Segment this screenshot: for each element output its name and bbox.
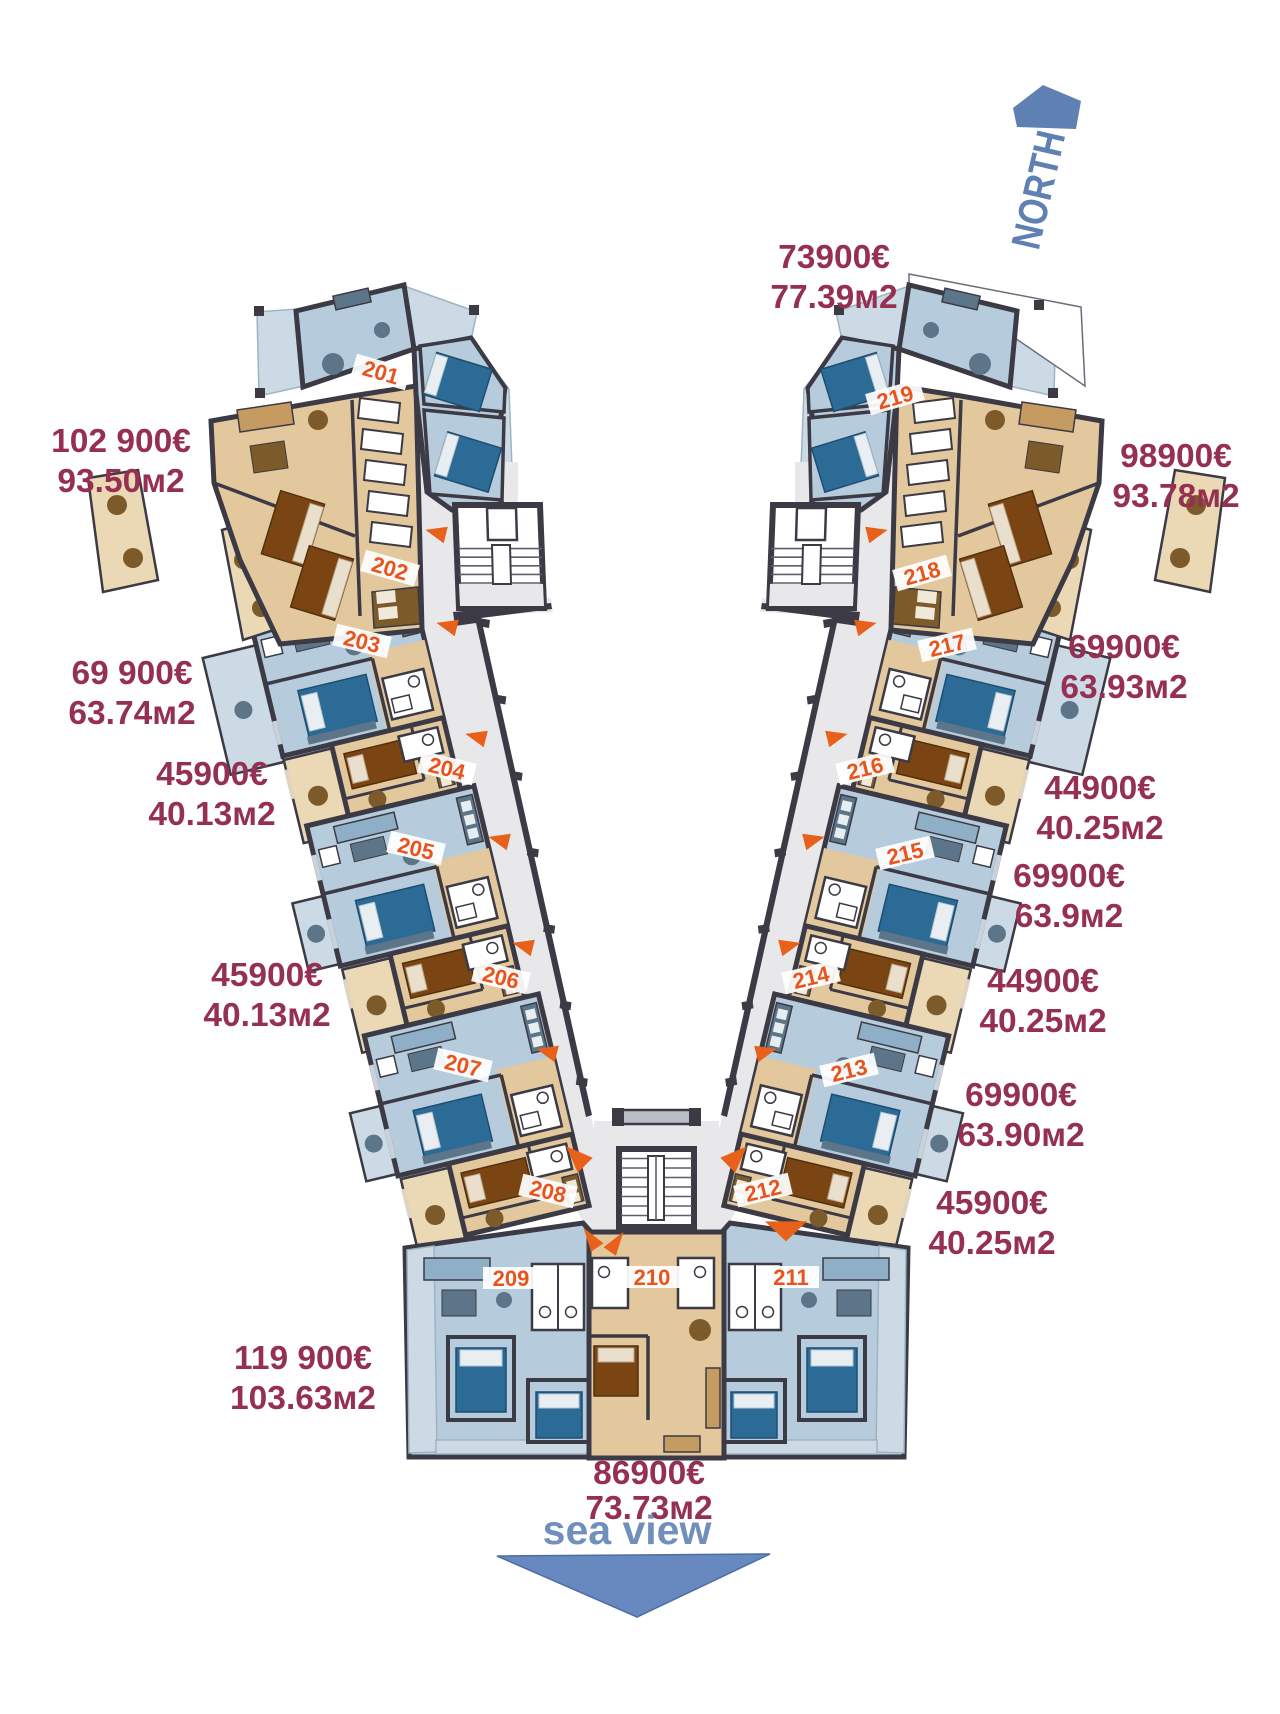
svg-text:69900€: 69900€ [1068, 629, 1180, 666]
svg-text:69900€: 69900€ [1013, 858, 1125, 895]
svg-text:98900€: 98900€ [1120, 438, 1232, 475]
svg-text:211: 211 [773, 1265, 809, 1290]
svg-text:77.39м2: 77.39м2 [770, 279, 897, 316]
svg-text:sea view: sea view [543, 1507, 712, 1553]
svg-text:209: 209 [493, 1266, 530, 1291]
svg-text:210: 210 [634, 1265, 671, 1290]
svg-text:40.13м2: 40.13м2 [203, 997, 330, 1034]
svg-text:63.93м2: 63.93м2 [1060, 669, 1187, 706]
svg-text:44900€: 44900€ [1044, 770, 1156, 807]
svg-text:119 900€: 119 900€ [234, 1340, 372, 1377]
svg-text:40.25м2: 40.25м2 [1036, 810, 1163, 847]
svg-text:86900€: 86900€ [593, 1455, 705, 1492]
svg-text:73900€: 73900€ [778, 239, 890, 276]
svg-text:40.13м2: 40.13м2 [148, 796, 275, 833]
svg-text:63.90м2: 63.90м2 [957, 1117, 1084, 1154]
svg-text:40.25м2: 40.25м2 [979, 1003, 1106, 1040]
svg-text:93.50м2: 93.50м2 [57, 463, 184, 500]
svg-text:45900€: 45900€ [156, 756, 268, 793]
svg-text:40.25м2: 40.25м2 [928, 1225, 1055, 1262]
svg-text:69 900€: 69 900€ [71, 655, 192, 692]
svg-text:93.78м2: 93.78м2 [1112, 478, 1239, 515]
svg-text:63.9м2: 63.9м2 [1015, 898, 1124, 935]
svg-text:103.63м2: 103.63м2 [230, 1380, 376, 1417]
svg-text:69900€: 69900€ [965, 1077, 1077, 1114]
svg-text:102 900€: 102 900€ [51, 423, 191, 460]
svg-text:45900€: 45900€ [936, 1185, 1048, 1222]
svg-text:45900€: 45900€ [211, 957, 323, 994]
svg-text:63.74м2: 63.74м2 [68, 695, 195, 732]
svg-text:44900€: 44900€ [987, 963, 1099, 1000]
